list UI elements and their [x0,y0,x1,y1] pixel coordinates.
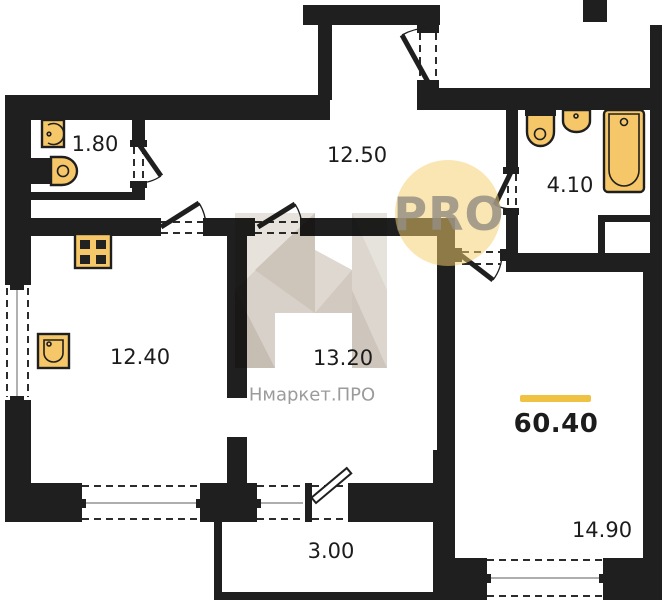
room-label-living: 13.20 [313,346,373,370]
wc-sink [42,120,64,147]
wc-toilet [30,157,77,185]
kitchen-door [161,203,206,233]
wc-door [134,143,161,183]
window-bedroom [483,560,607,596]
bathroom-toilet [525,110,556,146]
duct-shaft [598,215,655,253]
room-label-wc: 1.80 [72,132,119,156]
window-left-wall [7,283,28,403]
window-kitchen [78,486,204,519]
floor-plan-drawing [0,0,662,600]
bathtub [604,110,644,192]
total-area-label: 60.40 [514,409,599,439]
bathroom-sink [563,110,590,132]
room-label-bedroom: 14.90 [572,518,632,542]
room-label-balcony: 3.00 [308,539,355,563]
brand-watermark-text: Нмаркет.ПРО [249,385,375,406]
room-label-bathroom: 4.10 [547,173,594,197]
kitchen-sink [38,334,69,368]
stove [75,234,111,268]
floor-plan: 1.80 12.50 4.10 12.40 13.20 3.00 14.90 6… [0,0,662,600]
total-area-underline [520,395,591,402]
window-living [253,483,352,522]
room-label-hallway: 12.50 [327,143,387,167]
entrance-door [402,28,436,82]
watermark-h-logo [235,213,387,368]
room-label-kitchen: 12.40 [110,345,170,369]
pro-badge-text: PRO [393,187,504,241]
